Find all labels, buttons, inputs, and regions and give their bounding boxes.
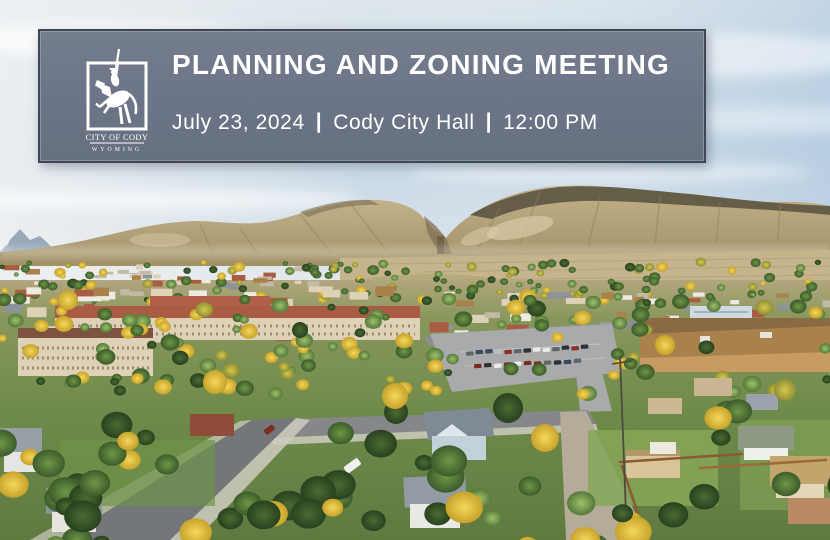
event-date: July 23, 2024 [172,111,305,135]
event-location: Cody City Hall [333,111,474,135]
event-title: PLANNING AND ZONING MEETING [172,49,694,81]
separator: | [475,110,503,134]
event-banner: CITY OF CODY WYOMING PLANNING AND ZONING… [38,29,706,163]
city-of-cody-logo: CITY OF CODY WYOMING [85,47,149,155]
event-details: July 23, 2024 | Cody City Hall | 12:00 P… [172,111,694,135]
logo-city-name: CITY OF CODY [86,133,149,142]
horse-rider-icon [88,49,146,129]
logo-state-name: WYOMING [92,147,142,153]
event-time: 12:00 PM [503,111,598,135]
meeting-announcement-graphic: CITY OF CODY WYOMING PLANNING AND ZONING… [0,0,830,540]
separator: | [305,110,333,134]
